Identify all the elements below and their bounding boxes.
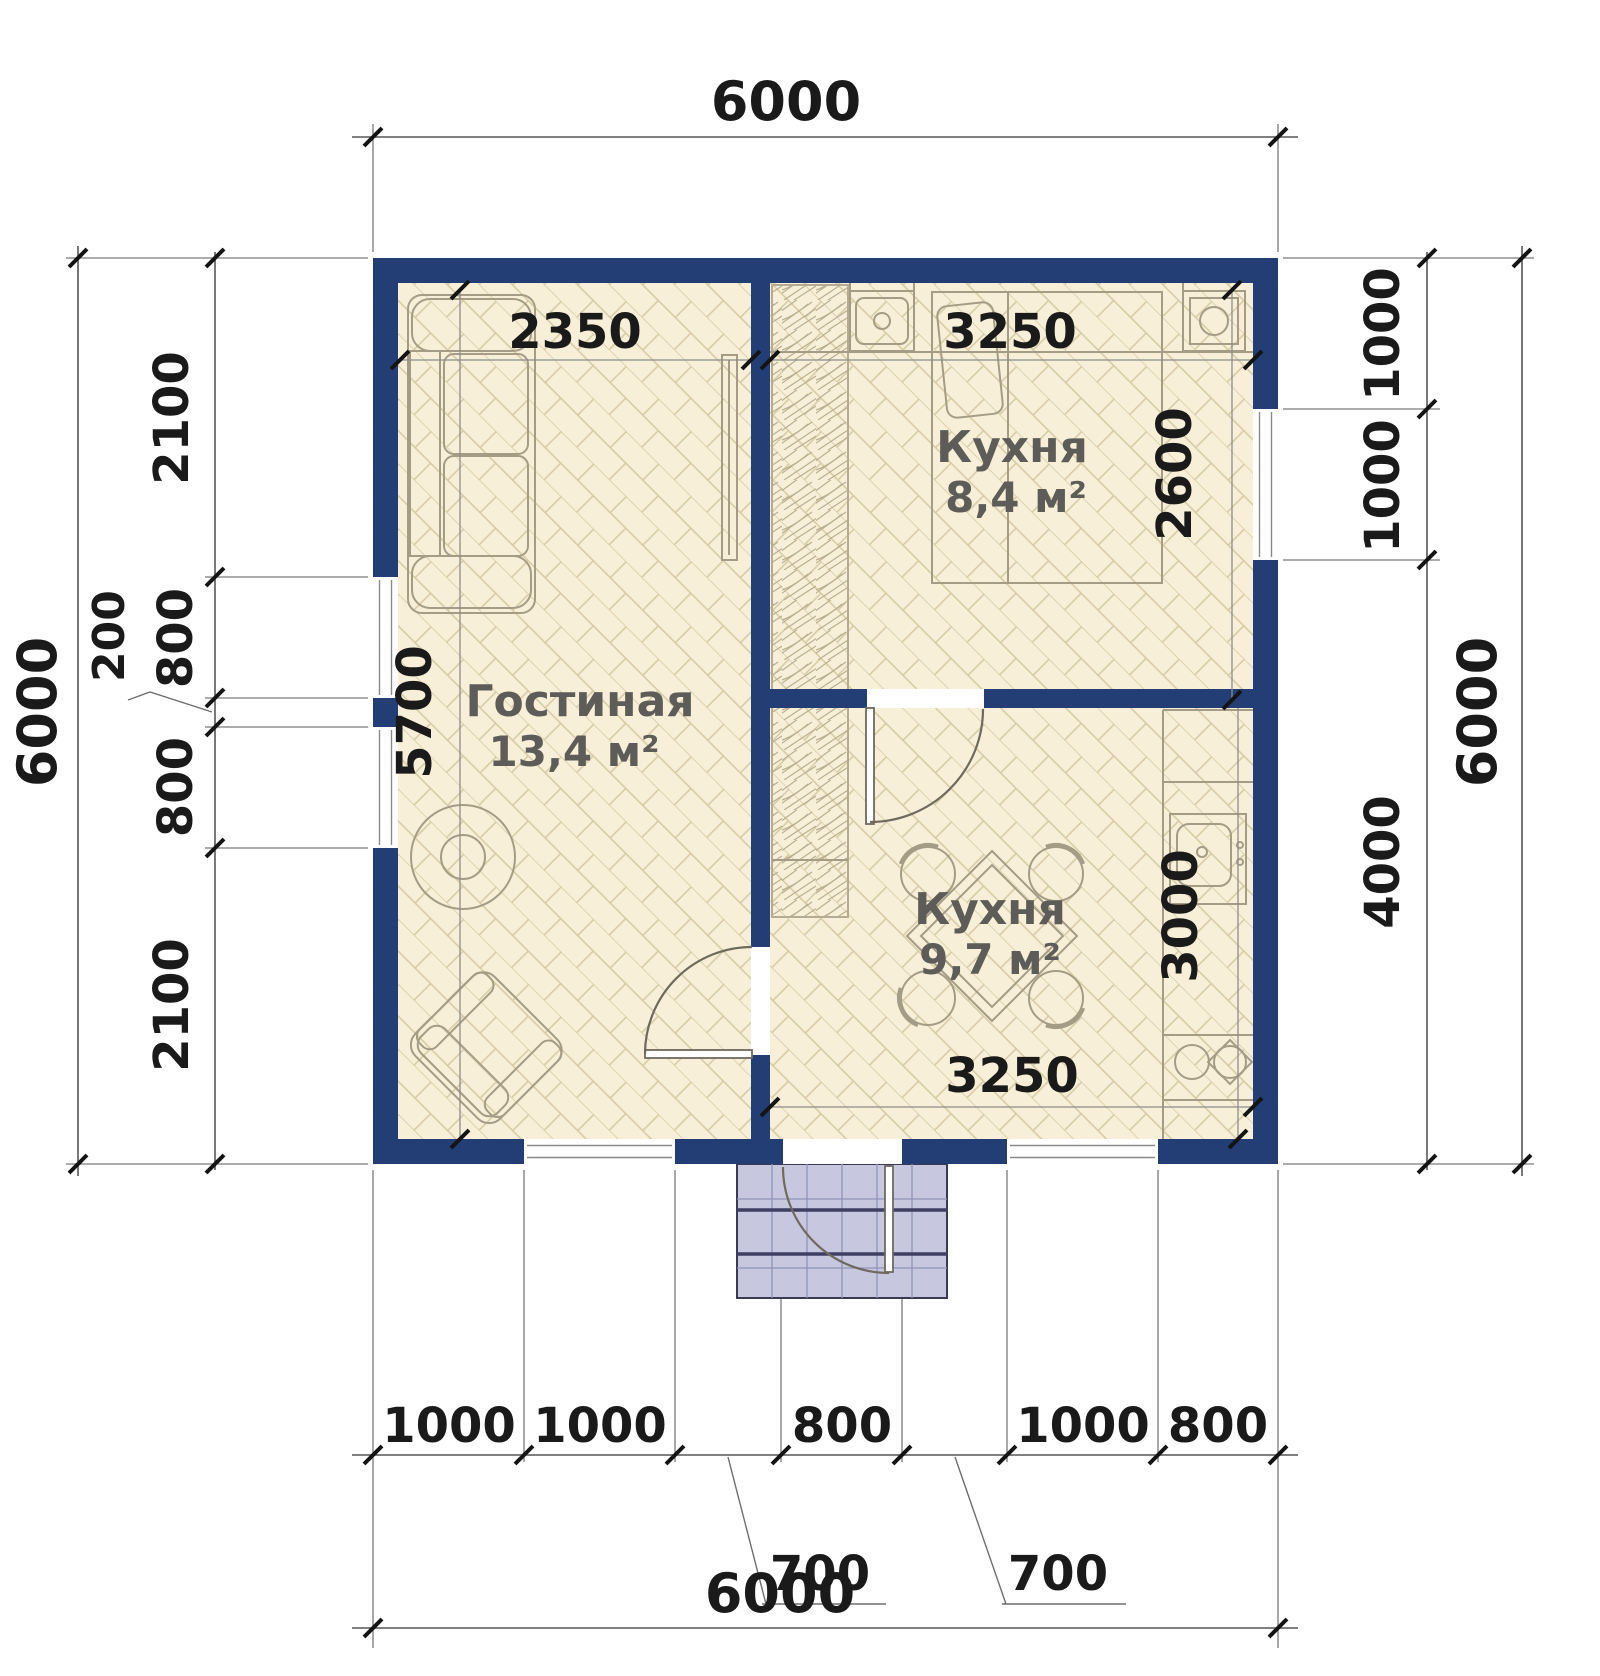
dim-left-200: 200 — [84, 590, 135, 682]
dim-bottom-800-a: 800 — [792, 1398, 892, 1454]
window-bottom-left — [524, 1139, 675, 1164]
partition-vertical — [751, 283, 770, 947]
dim-kitchen-top-width: 3250 — [943, 304, 1077, 360]
dim-left-800-bottom: 800 — [148, 737, 204, 837]
dim-bottom-1000-c: 1000 — [1016, 1398, 1150, 1454]
dim-living-width: 2350 — [508, 304, 642, 360]
dim-living-height: 5700 — [387, 645, 443, 779]
dim-right-1000-mid: 1000 — [1355, 419, 1411, 553]
dim-left-2100-top: 2100 — [144, 351, 200, 485]
partition-vertical-stub — [751, 1055, 770, 1139]
floor-plan: 6000 6000 6000 6000 2100 800 200 800 210… — [0, 0, 1600, 1676]
living-room-area: 13,4 м² — [489, 727, 660, 776]
partition-horizontal-right — [984, 689, 1253, 708]
dim-kitchen-top-height: 2600 — [1147, 407, 1203, 541]
kitchen-top-area: 8,4 м² — [945, 473, 1087, 522]
window-right — [1253, 409, 1278, 560]
kitchen-bottom-name: Кухня — [914, 884, 1066, 935]
dim-bottom-700-b: 700 — [1008, 1546, 1108, 1602]
kitchen-top-name: Кухня — [936, 422, 1088, 473]
entry-opening — [783, 1139, 902, 1164]
dim-top-total: 6000 — [711, 70, 861, 133]
dim-kitchen-bottom-width: 3250 — [945, 1048, 1079, 1104]
dim-kitchen-bottom-height: 3000 — [1153, 849, 1209, 983]
dim-right-4000: 4000 — [1355, 795, 1411, 929]
dim-left-total: 6000 — [6, 637, 69, 787]
living-room-name: Гостиная — [465, 676, 694, 727]
dim-right-1000-top: 1000 — [1355, 267, 1411, 401]
dim-right-total: 6000 — [1446, 637, 1509, 787]
dim-bottom-700-a: 700 — [770, 1546, 870, 1602]
closet-strip — [772, 285, 848, 917]
partition-horizontal-left — [770, 689, 867, 708]
dim-bottom-1000-a: 1000 — [382, 1398, 516, 1454]
dim-left-800-top: 800 — [148, 588, 204, 688]
porch — [737, 1164, 947, 1298]
window-bottom-right — [1007, 1139, 1158, 1164]
dim-bottom-800-b: 800 — [1168, 1398, 1268, 1454]
dim-bottom-1000-b: 1000 — [533, 1398, 667, 1454]
dim-left-2100-bottom: 2100 — [144, 938, 200, 1072]
kitchen-bottom-area: 9,7 м² — [919, 935, 1061, 984]
